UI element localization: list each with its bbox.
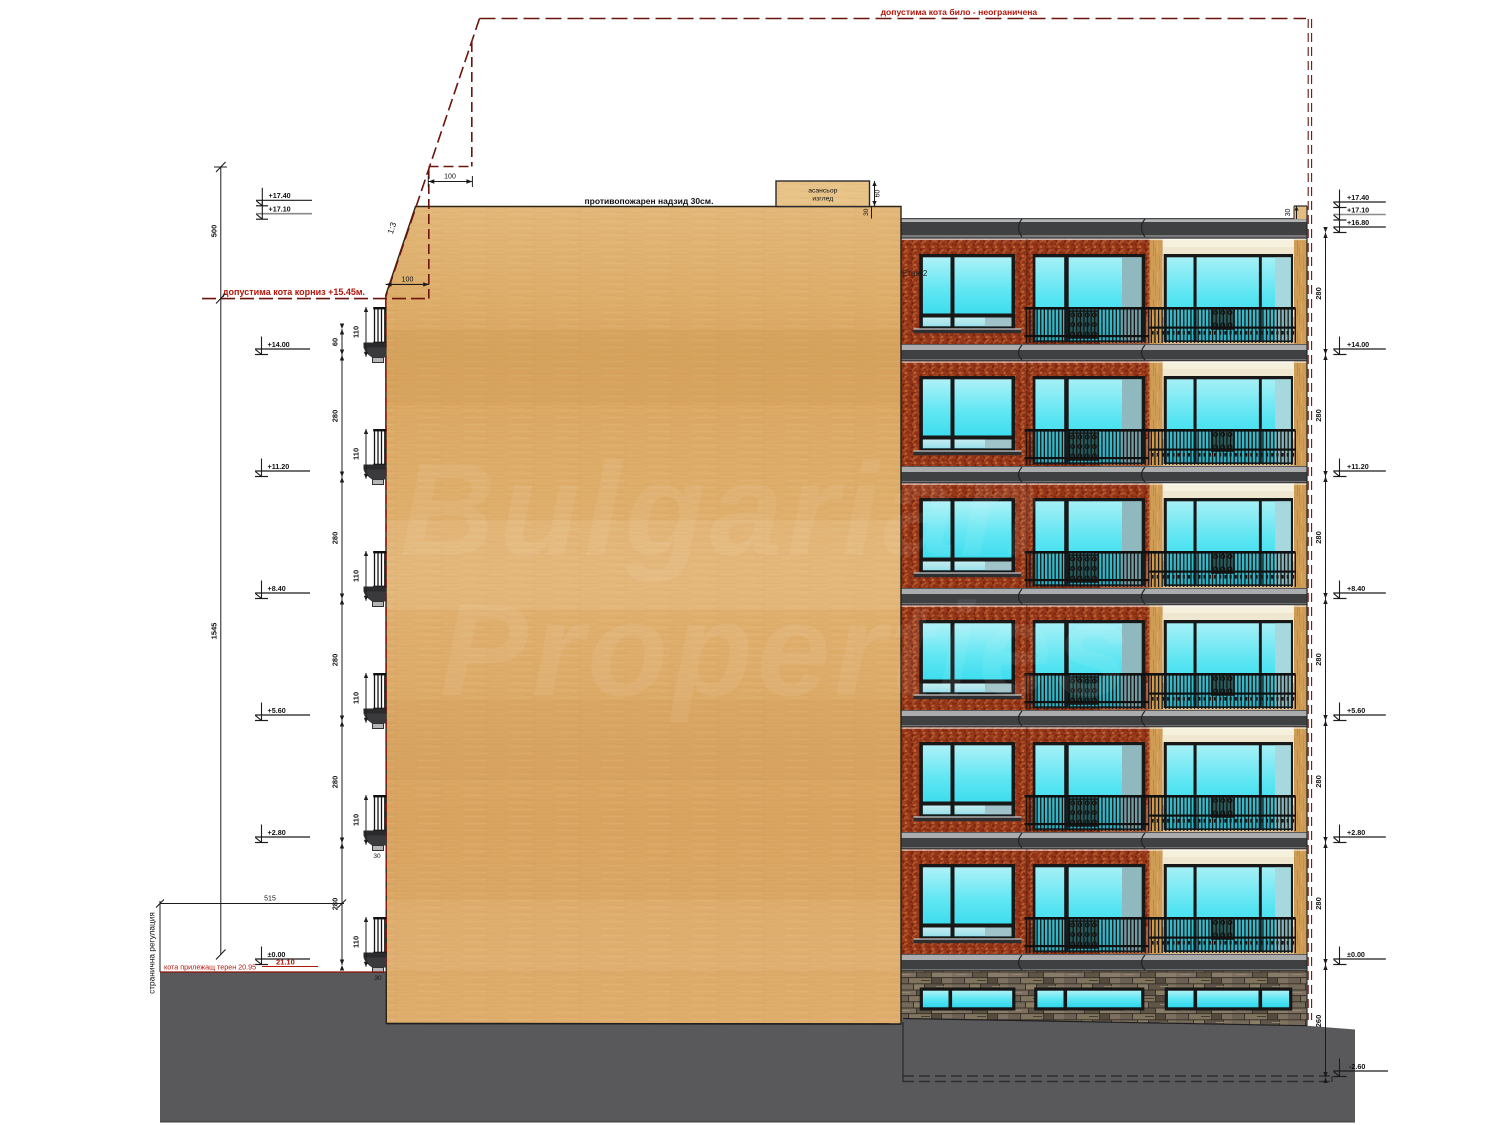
svg-text:Етаж 2: Етаж 2 bbox=[902, 269, 928, 278]
svg-text:280: 280 bbox=[1314, 287, 1323, 300]
svg-text:+2.80: +2.80 bbox=[1347, 828, 1365, 837]
svg-text:110: 110 bbox=[352, 448, 361, 460]
svg-text:280: 280 bbox=[1314, 531, 1323, 544]
svg-text:+8.40: +8.40 bbox=[268, 584, 286, 593]
svg-text:515: 515 bbox=[264, 896, 276, 903]
svg-text:странична регулация: странична регулация bbox=[147, 912, 157, 994]
svg-text:30: 30 bbox=[1285, 209, 1292, 217]
svg-text:+5.60: +5.60 bbox=[268, 706, 286, 715]
svg-text:+14.00: +14.00 bbox=[1347, 340, 1369, 349]
svg-text:100: 100 bbox=[402, 277, 414, 284]
svg-text:110: 110 bbox=[352, 936, 361, 948]
svg-text:-2.60: -2.60 bbox=[1349, 1062, 1365, 1071]
svg-text:280: 280 bbox=[331, 532, 340, 545]
svg-text:110: 110 bbox=[352, 692, 361, 704]
svg-text:30: 30 bbox=[374, 975, 382, 982]
svg-text:60: 60 bbox=[331, 338, 340, 346]
svg-text:1545: 1545 bbox=[210, 623, 219, 640]
svg-text:+17.40: +17.40 bbox=[269, 191, 291, 200]
svg-text:+8.40: +8.40 bbox=[1347, 584, 1365, 593]
svg-text:280: 280 bbox=[1314, 897, 1323, 910]
svg-text:+17.40: +17.40 bbox=[1347, 193, 1369, 202]
svg-text:±0.00: ±0.00 bbox=[1347, 950, 1365, 959]
svg-text:+5.60: +5.60 bbox=[1347, 706, 1365, 715]
svg-text:280: 280 bbox=[1314, 775, 1323, 788]
svg-text:100: 100 bbox=[444, 174, 456, 181]
svg-text:110: 110 bbox=[352, 326, 361, 338]
svg-text:допустима кота корниз +15.45м.: допустима кота корниз +15.45м. bbox=[223, 287, 365, 297]
svg-text:+11.20: +11.20 bbox=[268, 462, 290, 471]
svg-text:Bulgarian: Bulgarian bbox=[400, 436, 1045, 583]
svg-text:асансьор: асансьор bbox=[808, 188, 837, 195]
svg-text:30: 30 bbox=[863, 208, 870, 216]
svg-text:21.10: 21.10 bbox=[276, 958, 295, 967]
svg-text:допустима кота било - неограни: допустима кота било - неограничена bbox=[881, 7, 1038, 17]
svg-text:260: 260 bbox=[1314, 1015, 1323, 1028]
svg-text:Properties: Properties bbox=[440, 576, 1133, 723]
svg-text:280: 280 bbox=[1314, 409, 1323, 422]
svg-text:противопожарен надзид 30см.: противопожарен надзид 30см. bbox=[585, 196, 714, 206]
svg-text:110: 110 bbox=[352, 570, 361, 582]
svg-text:280: 280 bbox=[331, 410, 340, 423]
svg-text:30: 30 bbox=[373, 853, 381, 860]
svg-text:280: 280 bbox=[331, 776, 340, 789]
svg-text:+14.00: +14.00 bbox=[268, 340, 290, 349]
svg-text:60: 60 bbox=[875, 190, 882, 198]
svg-text:+11.20: +11.20 bbox=[1347, 462, 1369, 471]
svg-text:+17.10: +17.10 bbox=[269, 205, 291, 214]
svg-text:280: 280 bbox=[1314, 653, 1323, 666]
svg-text:кота прилежащ терен 20.95: кота прилежащ терен 20.95 bbox=[164, 962, 256, 971]
svg-text:280: 280 bbox=[331, 654, 340, 667]
svg-text:+17.10: +17.10 bbox=[1347, 205, 1369, 214]
svg-text:110: 110 bbox=[352, 814, 361, 826]
svg-text:+2.80: +2.80 bbox=[268, 828, 286, 837]
svg-text:500: 500 bbox=[210, 225, 219, 238]
svg-text:+16.80: +16.80 bbox=[1347, 218, 1369, 227]
svg-text:изглед: изглед bbox=[812, 196, 833, 203]
